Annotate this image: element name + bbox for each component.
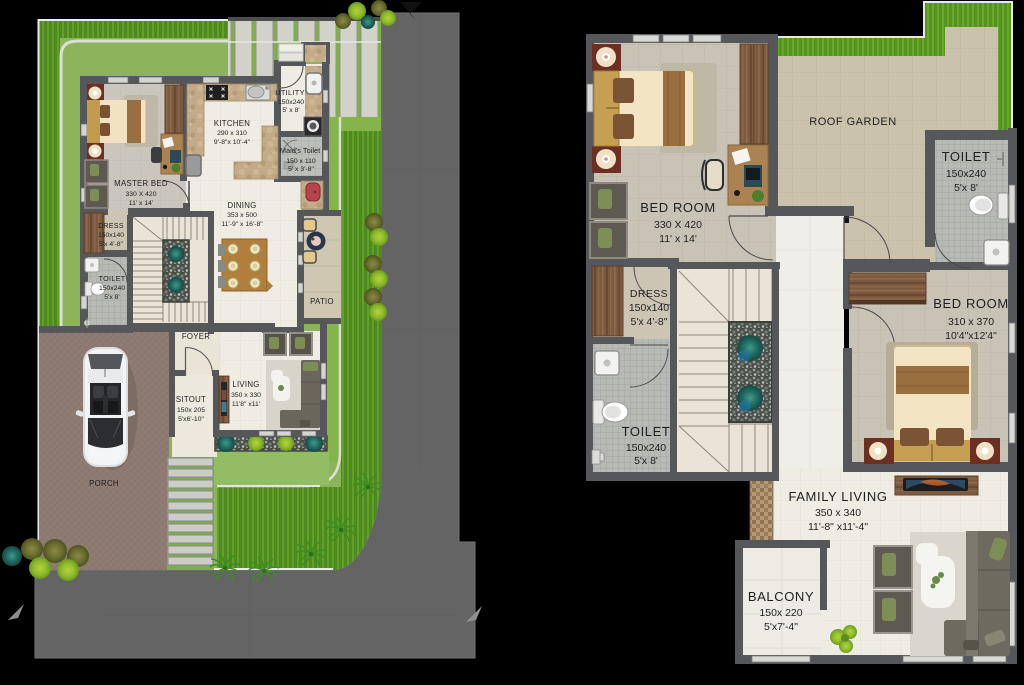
svg-text:330 X 420: 330 X 420 bbox=[126, 191, 157, 198]
svg-text:MASTER BED: MASTER BED bbox=[114, 179, 168, 188]
svg-text:310 x 370: 310 x 370 bbox=[948, 316, 994, 328]
svg-text:350 x 330: 350 x 330 bbox=[231, 392, 261, 399]
svg-text:150x 205: 150x 205 bbox=[177, 407, 205, 414]
svg-text:PATIO: PATIO bbox=[310, 297, 334, 306]
svg-text:11'-9" x 16'-8": 11'-9" x 16'-8" bbox=[221, 221, 263, 228]
svg-text:5'x 8': 5'x 8' bbox=[104, 294, 119, 301]
svg-text:353 x 500: 353 x 500 bbox=[227, 212, 257, 219]
svg-text:BED ROOM: BED ROOM bbox=[933, 296, 1009, 311]
svg-text:11' x 14': 11' x 14' bbox=[659, 233, 697, 245]
svg-text:TOILET: TOILET bbox=[99, 274, 126, 283]
svg-text:11' x 14': 11' x 14' bbox=[129, 200, 153, 207]
svg-text:FOYER: FOYER bbox=[182, 332, 210, 341]
svg-text:5'x7'-4": 5'x7'-4" bbox=[764, 621, 798, 633]
svg-text:5'x 8': 5'x 8' bbox=[954, 182, 978, 194]
svg-text:ROOF GARDEN: ROOF GARDEN bbox=[809, 116, 896, 128]
svg-text:150x240: 150x240 bbox=[278, 99, 304, 106]
svg-text:5'x 4'-8": 5'x 4'-8" bbox=[99, 241, 123, 248]
svg-text:Maid's Toilet: Maid's Toilet bbox=[280, 146, 320, 155]
svg-text:150x240: 150x240 bbox=[626, 442, 666, 454]
svg-text:11'-8" x11'-4": 11'-8" x11'-4" bbox=[808, 521, 868, 533]
svg-text:BED ROOM: BED ROOM bbox=[640, 200, 716, 215]
svg-text:290 x 310: 290 x 310 bbox=[217, 130, 247, 137]
svg-text:KITCHEN: KITCHEN bbox=[214, 119, 250, 128]
svg-text:5'x6'-10": 5'x6'-10" bbox=[178, 416, 204, 423]
svg-text:350 x 340: 350 x 340 bbox=[815, 507, 861, 519]
svg-text:PORCH: PORCH bbox=[89, 479, 119, 488]
svg-text:5' x 3'-8": 5' x 3'-8" bbox=[288, 166, 314, 173]
svg-text:11'8" x11': 11'8" x11' bbox=[232, 401, 260, 408]
svg-text:150 x 110: 150 x 110 bbox=[286, 158, 316, 165]
svg-text:BALCONY: BALCONY bbox=[748, 589, 814, 604]
svg-text:150x 220: 150x 220 bbox=[759, 607, 802, 619]
svg-text:DRESS: DRESS bbox=[98, 223, 124, 230]
svg-text:330 X 420: 330 X 420 bbox=[654, 219, 702, 231]
svg-text:5' x 8': 5' x 8' bbox=[282, 107, 299, 114]
svg-text:150x240: 150x240 bbox=[99, 285, 125, 292]
svg-text:10'4"x12'4": 10'4"x12'4" bbox=[945, 330, 997, 342]
svg-text:150x140: 150x140 bbox=[98, 232, 124, 239]
svg-text:DINING: DINING bbox=[227, 201, 256, 210]
svg-text:5'x 8': 5'x 8' bbox=[634, 455, 658, 467]
svg-text:SITOUT: SITOUT bbox=[176, 395, 206, 404]
svg-text:LIVING: LIVING bbox=[232, 380, 259, 389]
svg-text:TOILET: TOILET bbox=[622, 424, 671, 439]
svg-text:TOILET: TOILET bbox=[942, 149, 991, 164]
svg-text:FAMILY LIVING: FAMILY LIVING bbox=[788, 489, 887, 504]
svg-text:150x140: 150x140 bbox=[629, 302, 669, 314]
svg-text:9'-8"x 10'-4": 9'-8"x 10'-4" bbox=[214, 139, 251, 146]
svg-text:150x240: 150x240 bbox=[946, 168, 986, 180]
svg-text:UTILITY: UTILITY bbox=[275, 88, 305, 97]
svg-text:5'x 4'-8": 5'x 4'-8" bbox=[631, 316, 668, 328]
svg-text:DRESS: DRESS bbox=[630, 288, 668, 300]
